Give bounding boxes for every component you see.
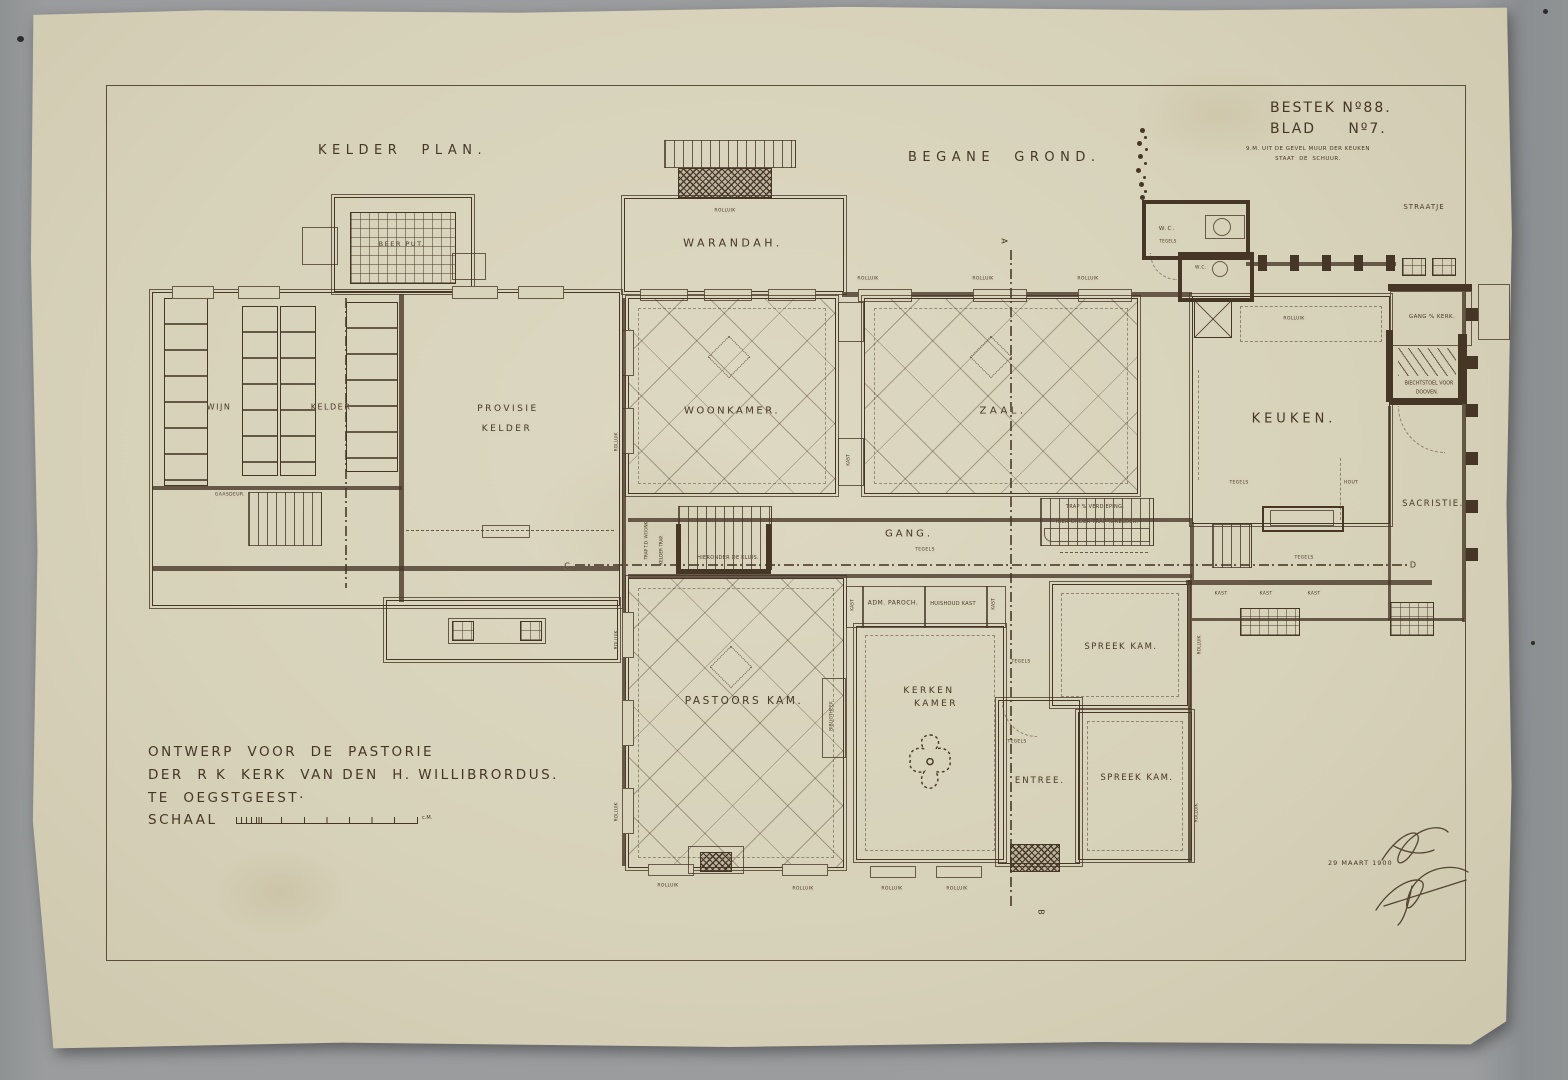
annotation: ROLLUIK [615, 432, 620, 451]
room-label-dooven: DOOVEN. [1416, 391, 1439, 396]
room-label-entree: ENTREE. [1015, 776, 1065, 786]
room-label-gang-kerk: GANG % KERK. [1409, 314, 1455, 320]
cabinet-label: ADM. PAROCH. [868, 600, 918, 607]
stairs-label: TRAP % VERDIEPING. [1066, 504, 1124, 510]
cabinet-label: BIBLIOTHEEK [830, 701, 835, 731]
stairs-label: HIER ONDER TRAP % KELDER. [1056, 519, 1139, 525]
annotation: ROLLUIK [1198, 635, 1203, 654]
annotation: ROLLUIK [857, 277, 878, 282]
room-label-keuken: KEUKEN. [1252, 412, 1337, 427]
annotation: ROLLUIK [972, 277, 993, 282]
annotation: ROLLUIK [1077, 277, 1098, 282]
annotation: ROLLUIK [1195, 803, 1200, 822]
annotation: ROLLUIK [1283, 317, 1304, 322]
section-marker-c: C [564, 562, 570, 571]
section-marker-a: A [1000, 238, 1009, 243]
cabinet-label: KAST [992, 598, 997, 610]
annotation: GAASDEUR. [215, 493, 245, 498]
room-label-biechtstoel: BIECHTSTOEL VOOR [1405, 382, 1454, 387]
annotation: ROLLUIK [881, 887, 902, 892]
keuken-note-line1: 9.M. UIT DE GEVEL MUUR DER KEUKEN [1230, 146, 1386, 152]
annotation: HOUT [1344, 481, 1358, 486]
room-label-kerken: KERKEN [903, 686, 954, 696]
cabinet-label: KAST [851, 599, 856, 611]
room-label-wc-2: W.C. [1195, 266, 1207, 271]
room-label-provisie-kelder: KELDER [482, 424, 532, 434]
annotation: ROLLUIK [657, 884, 678, 889]
annotation: ROLLUIK [615, 630, 620, 649]
floor-plan-layer: BEER PUT.WIJNKELDERPROVISIEKELDERGAASDEU… [0, 0, 1568, 1080]
room-label-wijnkelder: KELDER [311, 403, 352, 412]
cabinet-label: KAST [847, 454, 852, 466]
scale-unit: c.M. [422, 815, 432, 821]
room-label-woonkamer: WOONKAMER. [684, 406, 780, 417]
cabinet-label: KAST [1260, 592, 1273, 597]
room-label-warandah: WARANDAH. [683, 237, 783, 250]
annotation: ROLLUIK [792, 887, 813, 892]
bestek-number: BESTEK Nº88. [1270, 100, 1392, 116]
annotation: TEGELS [915, 548, 935, 553]
room-label-gang: GANG. [885, 529, 933, 540]
section-marker-d: D [1410, 561, 1416, 570]
scale-bar [236, 814, 418, 824]
title-block-line2: DER R K KERK VAN DEN H. WILLIBRORDUS. [148, 767, 559, 783]
room-label-straatje: STRAATJE [1403, 203, 1444, 211]
annotation: ROLLUIK [714, 209, 735, 214]
cabinet-label: KAST [1215, 592, 1228, 597]
section-marker-b: B [1037, 909, 1046, 915]
annotation: ROLLUIK [946, 887, 967, 892]
room-label-zaal: ZAAL. [979, 406, 1026, 417]
scale-label: SCHAAL [148, 812, 218, 828]
room-label-wc-1: W.C. [1159, 226, 1175, 232]
stairs-label: TRAP T.D. WOONK. [644, 520, 649, 559]
annotation: ROLLUIK [615, 802, 620, 821]
annotation: TEGELS [1007, 740, 1026, 745]
blad-number: BLAD Nº7. [1270, 121, 1387, 137]
title-block-line1: ONTWERP VOOR DE PASTORIE [148, 744, 434, 760]
room-label-spreekkamer-1: SPREEK KAM. [1084, 642, 1157, 652]
cabinet-label: KAST [1308, 592, 1321, 597]
room-label-spreekkamer-2: SPREEK KAM. [1100, 773, 1173, 783]
annotation: TEGELS [1011, 660, 1030, 665]
room-label-kerken-kamer: KAMER [914, 699, 958, 709]
room-label-provisie: PROVISIE [477, 404, 538, 414]
title-block-line3: TE OEGSTGEEST· [148, 790, 306, 806]
stairs-label: HIERONDER DE KLUIS. [697, 555, 759, 561]
annotation: TEGELS [1159, 239, 1176, 244]
room-label-wijn: WIJN [207, 403, 232, 412]
signatures [1368, 822, 1486, 927]
room-label-pastoors-kamer: PASTOORS KAM. [685, 695, 804, 707]
cabinet-label: HUISHOUD KAST [930, 601, 976, 607]
begane-grond-title: BEGANE GROND. [908, 150, 1101, 165]
room-label-sacristie: SACRISTIE. [1402, 499, 1464, 509]
scanned-drawing-page: BEER PUT.WIJNKELDERPROVISIEKELDERGAASDEU… [0, 0, 1568, 1080]
plan-labels: BEER PUT.WIJNKELDERPROVISIEKELDERGAASDEU… [0, 0, 1568, 1080]
annotation: TEGELS [1229, 481, 1248, 486]
stairs-label: KELDER TRAP. [659, 535, 664, 564]
kelder-plan-title: KELDER PLAN. [318, 143, 487, 158]
keuken-note-line2: STAAT DE SCHUUR. [1230, 156, 1386, 162]
room-label-beerput: BEER PUT. [379, 240, 426, 248]
annotation: TEGELS [1294, 556, 1313, 561]
